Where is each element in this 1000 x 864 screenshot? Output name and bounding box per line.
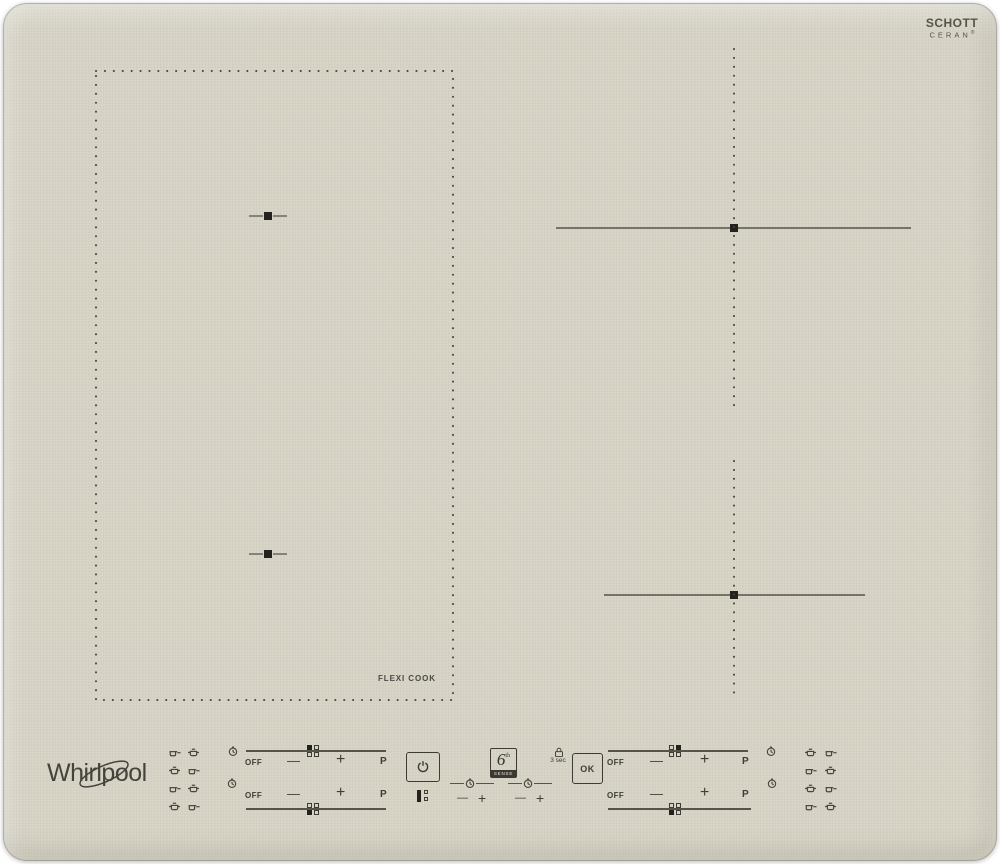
timer-plus-key[interactable]: + (478, 790, 486, 806)
flexi-zone-front-marker (249, 550, 287, 558)
registered-mark: ® (971, 30, 975, 36)
flexi-zone-dotted-border (96, 71, 453, 700)
timer-clock-icon (228, 746, 238, 756)
power-level-dot (676, 803, 681, 808)
six-sense-logo: 6th SENSE (490, 748, 517, 778)
pot-icon (824, 801, 837, 812)
minus-key-left-front[interactable]: — (287, 786, 300, 801)
flexi-cook-label: FLEXI COOK (378, 674, 436, 683)
pot-icon (168, 765, 181, 776)
power-level-dot (669, 803, 674, 808)
pan-icon (168, 747, 181, 758)
pan-icon (168, 783, 181, 794)
right-rear-zone (556, 49, 911, 410)
power-level-dot (314, 810, 319, 815)
off-key-left-rear[interactable]: OFF (245, 758, 262, 767)
timer-clock-icon (766, 746, 776, 756)
minus-key-right-front[interactable]: — (650, 786, 663, 801)
pan-icon (804, 765, 817, 776)
flexicook-indicator-bar (417, 790, 421, 802)
zone-graphics (3, 3, 1000, 864)
pot-icon (824, 765, 837, 776)
power-button[interactable] (406, 752, 440, 782)
plus-key-left-rear[interactable]: + (336, 751, 345, 769)
timer-minus-key[interactable]: — (457, 792, 468, 804)
power-level-dot (307, 810, 312, 815)
pan-icon (187, 801, 200, 812)
power-level-dot (669, 810, 674, 815)
timer-line (508, 783, 522, 784)
power-level-dot (307, 752, 312, 757)
whirlpool-logo: Whirlpool (47, 759, 147, 788)
power-level-dot (314, 752, 319, 757)
pan-icon (824, 747, 837, 758)
power-level-dot (307, 745, 312, 750)
off-key-left-front[interactable]: OFF (245, 791, 262, 800)
plus-key-right-front[interactable]: + (700, 784, 709, 802)
power-level-dot (676, 752, 681, 757)
timer-clock-icon[interactable] (465, 778, 475, 788)
pot-icon (804, 747, 817, 758)
timer-line (476, 783, 494, 784)
off-key-right-rear[interactable]: OFF (607, 758, 624, 767)
pan-icon (804, 801, 817, 812)
plus-key-left-front[interactable]: + (336, 784, 345, 802)
flexicook-indicator-dot (424, 797, 428, 801)
boost-key-left-front[interactable]: P (380, 789, 387, 800)
schott-logo-line2: CERAN® (919, 30, 985, 40)
timer-line (450, 783, 464, 784)
right-front-zone (604, 461, 865, 695)
timer-plus-key[interactable]: + (536, 790, 544, 806)
schott-logo-line1: SCHOTT (919, 16, 985, 30)
timer-clock-icon (767, 778, 777, 788)
power-level-dot (676, 745, 681, 750)
timer-minus-key[interactable]: — (515, 792, 526, 804)
pan-icon (187, 765, 200, 776)
ok-button[interactable]: OK (572, 753, 603, 784)
product-photo: SCHOTT CERAN® FLEXI COOK Whirlpool OFF —… (0, 0, 1000, 864)
power-level-dot (669, 745, 674, 750)
power-level-dot (676, 810, 681, 815)
boost-key-right-front[interactable]: P (742, 789, 749, 800)
off-key-right-front[interactable]: OFF (607, 791, 624, 800)
pot-icon (187, 747, 200, 758)
boost-key-left-rear[interactable]: P (380, 756, 387, 767)
power-icon (416, 760, 430, 774)
lock-hold-label: 3 sec (544, 757, 572, 764)
timer-clock-icon[interactable] (523, 778, 533, 788)
power-level-dot (314, 745, 319, 750)
power-level-dot (314, 803, 319, 808)
schott-ceran-logo: SCHOTT CERAN® (919, 16, 985, 40)
six-sense-digit: 6th (497, 749, 510, 770)
pot-icon (187, 783, 200, 794)
lock-icon (554, 747, 564, 757)
minus-key-left-rear[interactable]: — (287, 753, 300, 768)
timer-line (534, 783, 552, 784)
flexi-zone-rear-marker (249, 212, 287, 220)
power-level-dot (669, 752, 674, 757)
pot-icon (168, 801, 181, 812)
pan-icon (824, 783, 837, 794)
boost-key-right-rear[interactable]: P (742, 756, 749, 767)
minus-key-right-rear[interactable]: — (650, 753, 663, 768)
flexicook-indicator-dot (424, 790, 428, 794)
pot-icon (804, 783, 817, 794)
power-level-dot (307, 803, 312, 808)
six-sense-caption: SENSE (491, 770, 516, 777)
timer-clock-icon (227, 778, 237, 788)
plus-key-right-rear[interactable]: + (700, 751, 709, 769)
ceramic-glass-surface: SCHOTT CERAN® FLEXI COOK Whirlpool OFF —… (3, 3, 997, 861)
